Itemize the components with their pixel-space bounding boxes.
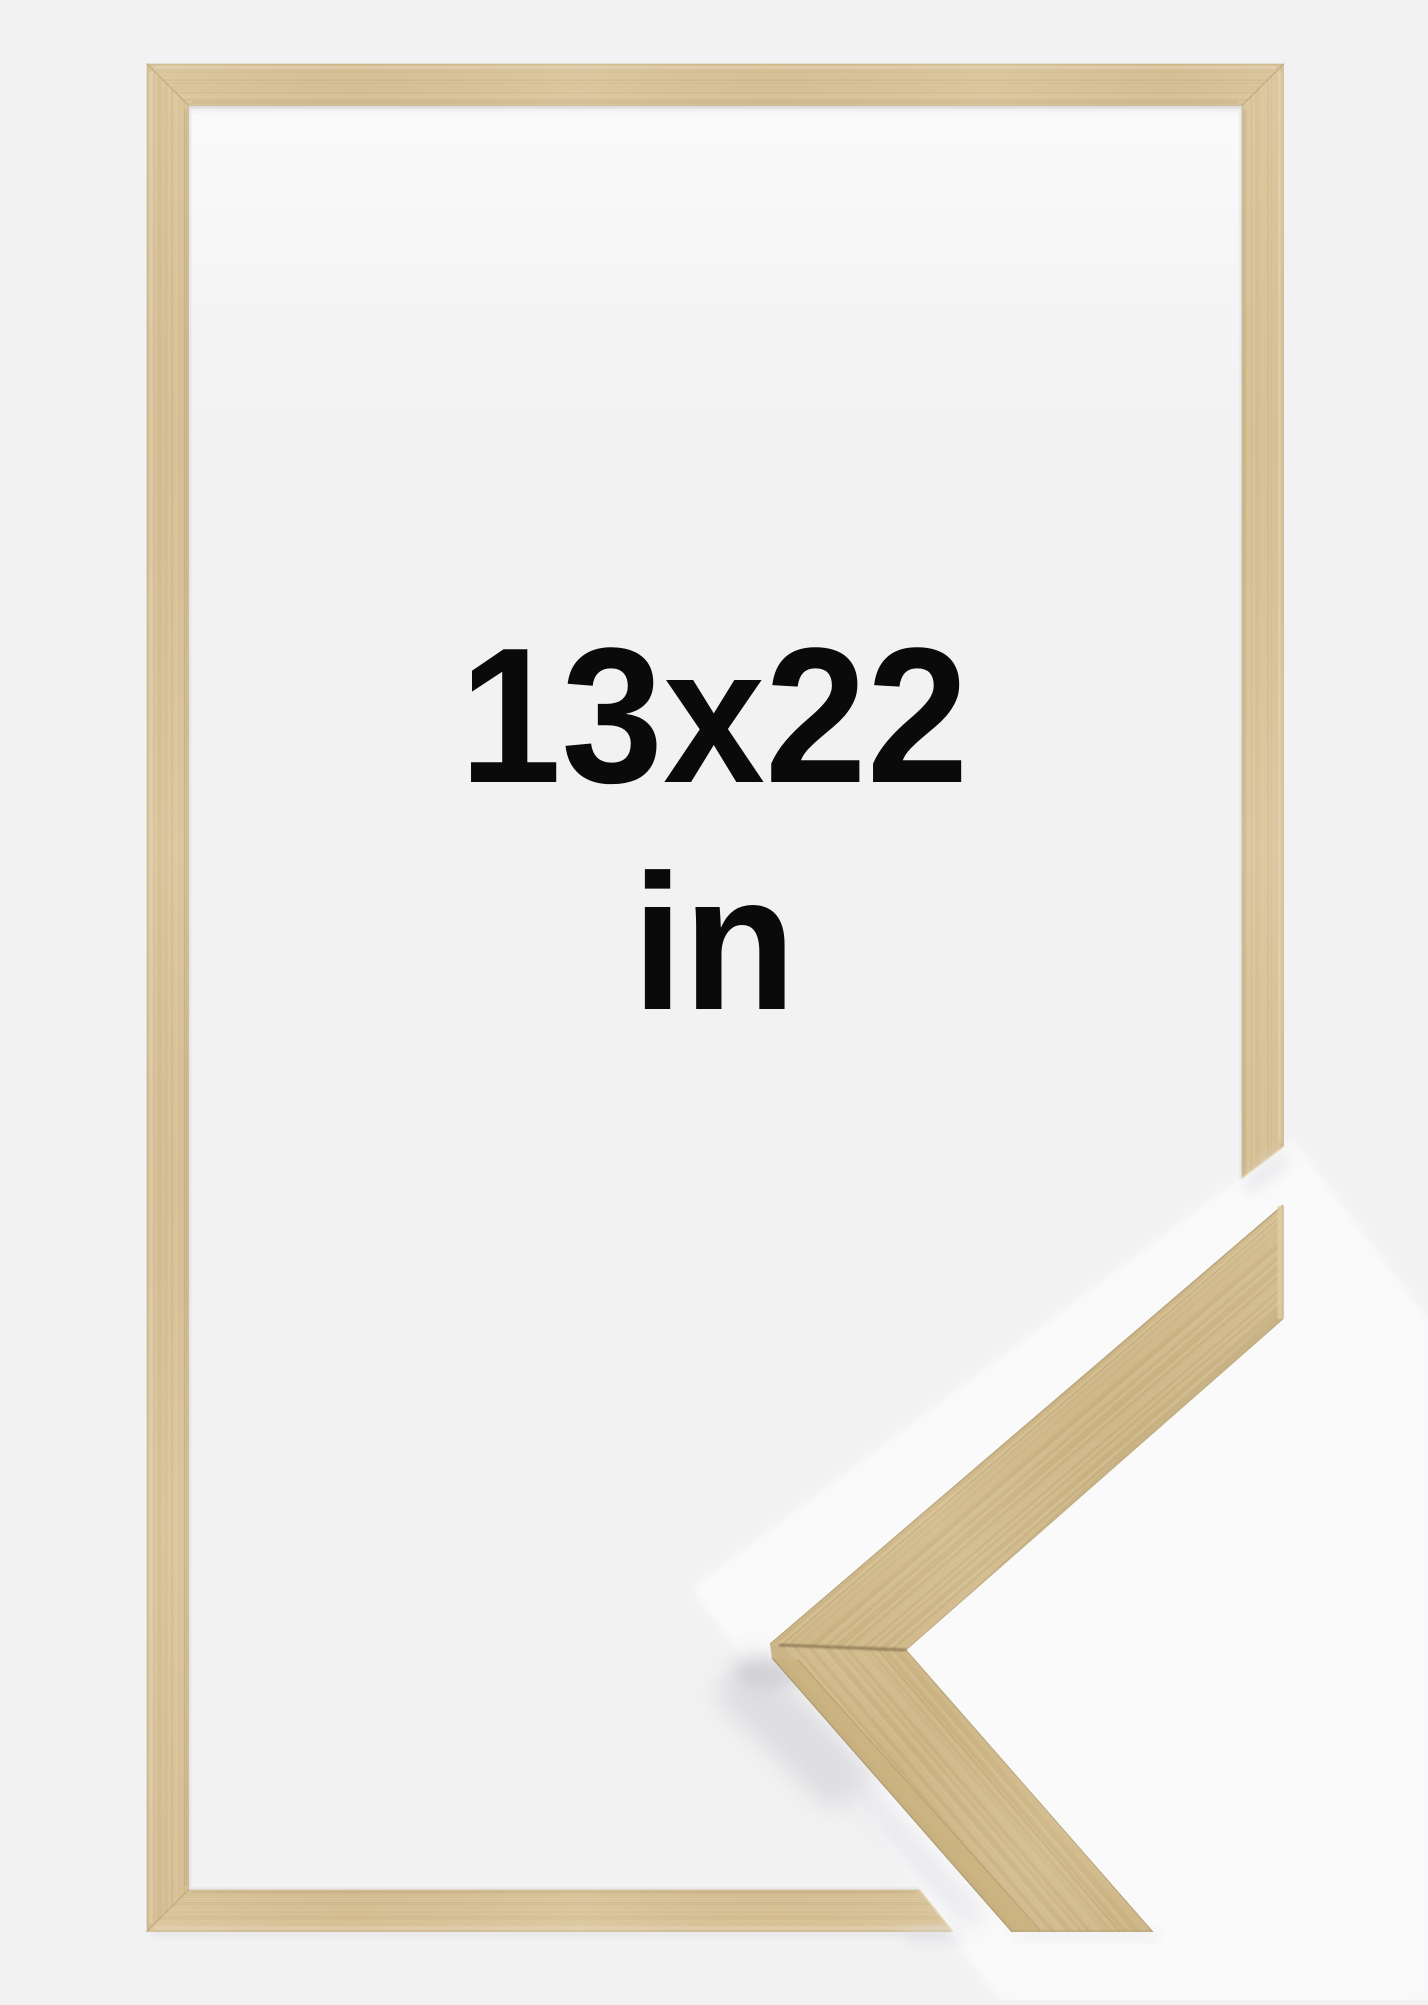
svg-text:in: in <box>632 834 796 1050</box>
svg-text:13x22: 13x22 <box>460 607 969 823</box>
